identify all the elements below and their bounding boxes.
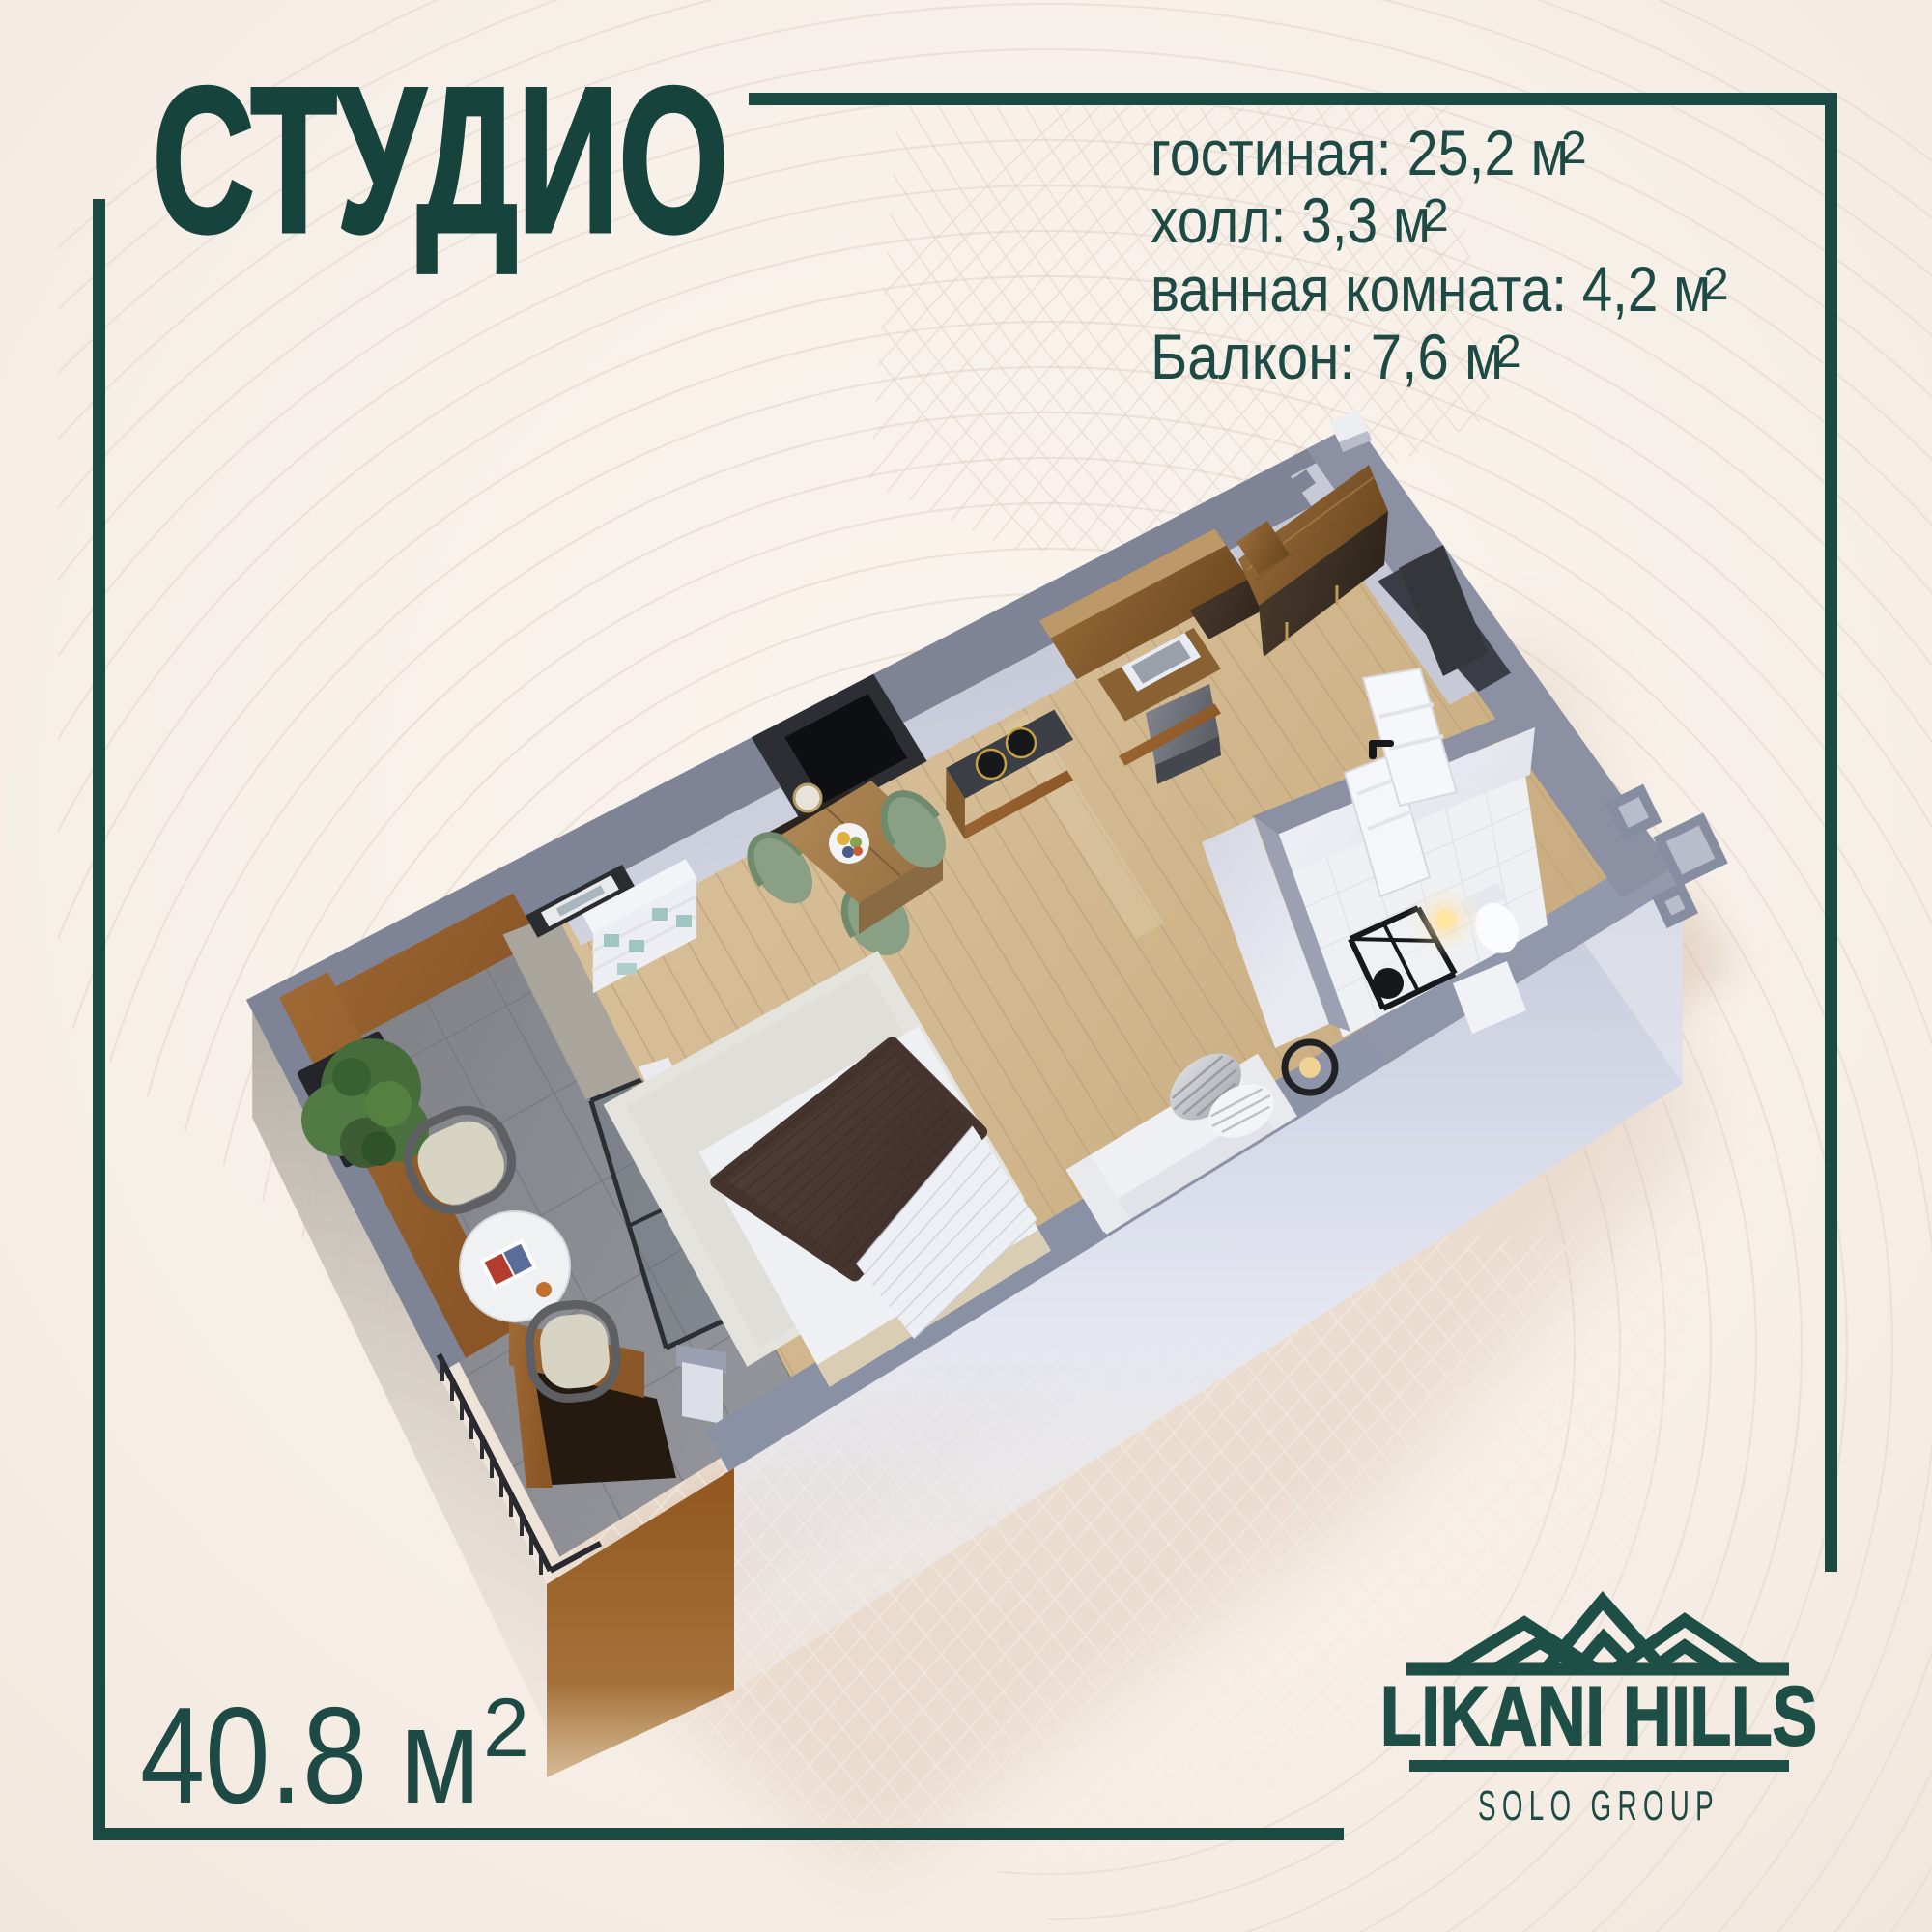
svg-text:Балкон: 7,6 м: Балкон: 7,6 м bbox=[1151, 321, 1503, 392]
svg-text:СТУДИО: СТУДИО bbox=[153, 45, 728, 275]
svg-text:2: 2 bbox=[1495, 327, 1521, 378]
svg-text:2: 2 bbox=[1703, 259, 1729, 310]
svg-text:гостиная: 25,2 м: гостиная: 25,2 м bbox=[1151, 117, 1569, 188]
svg-text:40.8 м: 40.8 м bbox=[140, 1679, 480, 1833]
svg-text:2: 2 bbox=[1423, 190, 1449, 241]
svg-text:2: 2 bbox=[483, 1682, 529, 1775]
svg-text:холл: 3,3 м: холл: 3,3 м bbox=[1151, 185, 1431, 256]
svg-text:2: 2 bbox=[1561, 123, 1587, 174]
svg-text:SOLO GROUP: SOLO GROUP bbox=[1478, 1782, 1719, 1830]
svg-text:LIKANI HILLS: LIKANI HILLS bbox=[1380, 1670, 1817, 1763]
svg-text:ванная комната: 4,2 м: ванная комната: 4,2 м bbox=[1151, 253, 1711, 325]
